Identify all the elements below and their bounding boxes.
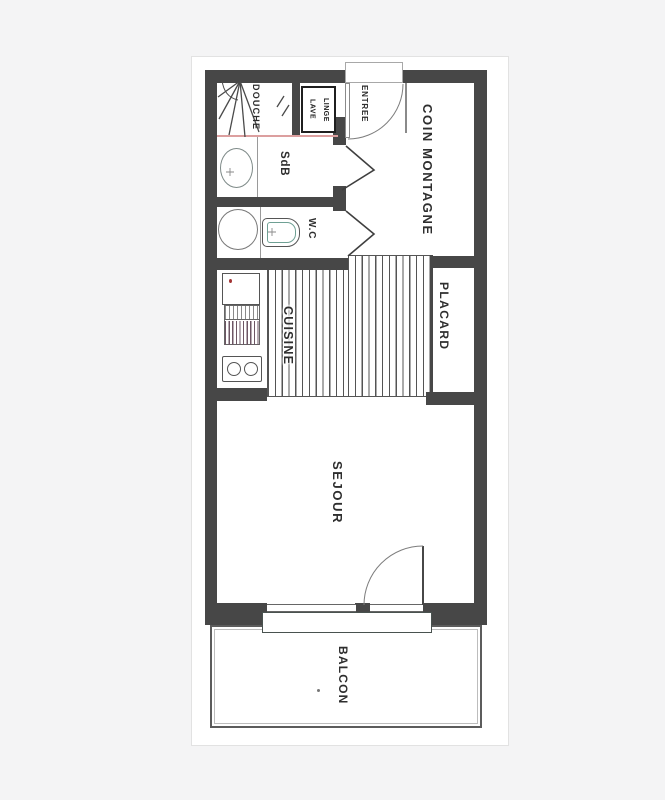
placard-label: PLACARD [437, 282, 451, 350]
top-wall-left [205, 70, 345, 83]
hatched-floor-left [267, 270, 348, 397]
sdb-label: SdB [278, 151, 290, 176]
right-wall [474, 70, 487, 625]
coin-montagne-label: COIN MONTAGNE [420, 104, 435, 236]
wc-counter-line [260, 207, 261, 258]
hatched-floor-right [348, 255, 431, 397]
placard-divider-line [430, 255, 433, 397]
wall-stub-sdb-wc [333, 186, 346, 211]
wall-sdb-wc [217, 197, 333, 207]
window-sill [262, 612, 432, 633]
sdb-counter-line [257, 137, 258, 197]
cuisine-label: CUISINE [281, 306, 295, 365]
left-wall [205, 70, 217, 625]
toilet-bowl-inner [267, 222, 296, 243]
bottom-wall-right [423, 603, 487, 625]
bottom-wall-left [205, 603, 267, 625]
stove-icon [222, 356, 262, 382]
window-band-right [370, 604, 423, 612]
entree-label: ENTREE [360, 85, 369, 122]
entry-doorway [345, 62, 403, 83]
sejour-label: SEJOUR [330, 461, 345, 524]
counter-red-dot [229, 279, 232, 283]
stove-burner-right [244, 362, 258, 376]
wall-placard-bottom [426, 392, 474, 405]
balcon-label: BALCON [336, 646, 350, 705]
shower-bottom-line [217, 135, 338, 137]
wall-kitchen-bottom [217, 388, 267, 401]
lave-linge-label: LAVE LINGE [305, 98, 332, 122]
entry-door-leaf [345, 83, 350, 138]
wc-label: W.C [306, 218, 317, 239]
wall-placard-top [432, 256, 474, 268]
wall-lavelinge-bar [292, 78, 300, 135]
wall-wc-kitchen [217, 258, 348, 270]
stove-burner-left [227, 362, 241, 376]
douche-label: DOUCHE [251, 84, 261, 130]
sink-drainer-icon [224, 305, 260, 345]
washing-machine-icon: LAVE LINGE [301, 86, 336, 133]
balcony-speck [317, 689, 320, 692]
entry-right-jamb-line [405, 83, 407, 133]
round-basin-icon [218, 209, 258, 250]
balcony-door-leaf [422, 546, 424, 605]
hatched-floor-bottom-line [267, 396, 431, 397]
washbasin-icon [220, 148, 253, 188]
drainer-top-band [225, 306, 259, 320]
drainer-bottom-band [225, 321, 259, 345]
window-band-left [267, 604, 356, 612]
kitchen-counter-icon [222, 273, 260, 305]
floorplan-canvas: LAVE LINGE [0, 0, 665, 800]
